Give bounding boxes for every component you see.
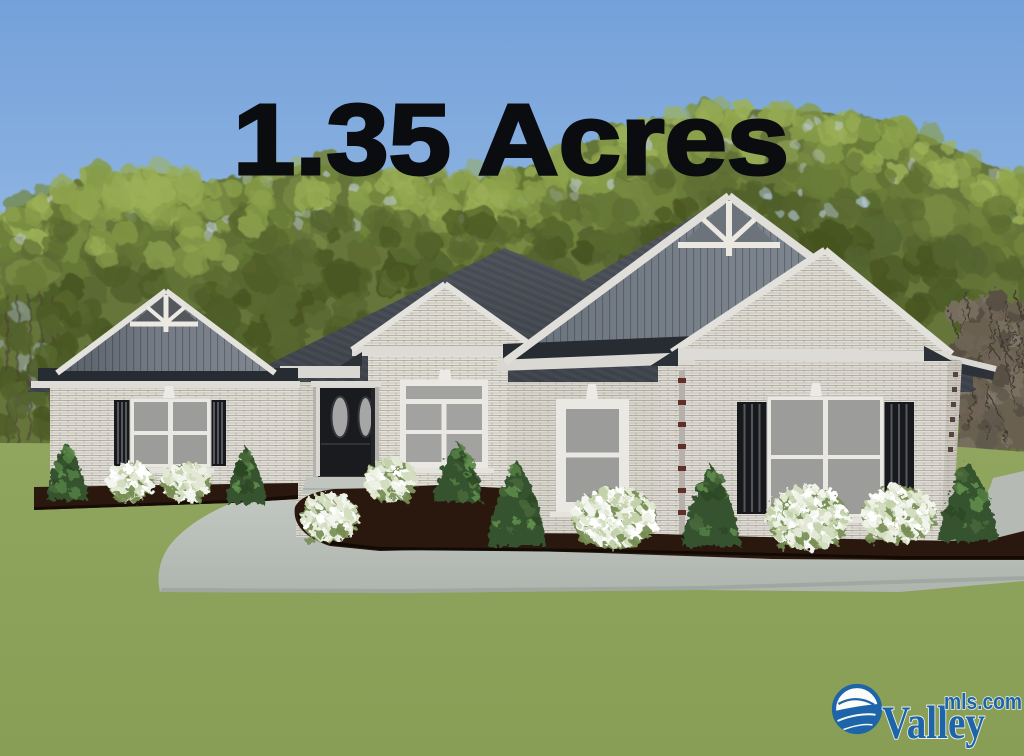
svg-text:mls.com: mls.com: [944, 689, 1022, 714]
svg-text:1.35 Acres: 1.35 Acres: [233, 84, 789, 196]
